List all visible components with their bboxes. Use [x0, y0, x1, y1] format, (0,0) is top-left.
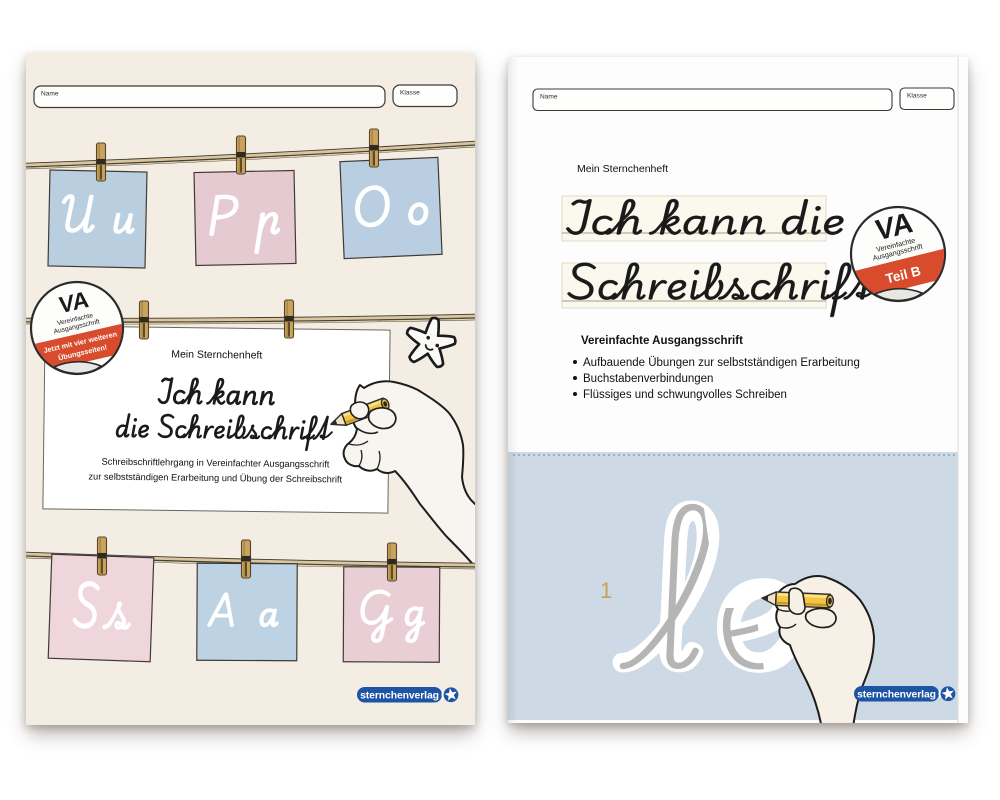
svg-text:sternchenverlag: sternchenverlag: [857, 690, 936, 701]
svg-text:Aufbauende Übungen zur selbsts: Aufbauende Übungen zur selbstständigen E…: [583, 357, 860, 369]
svg-text:Klasse: Klasse: [907, 93, 927, 100]
svg-text:Mein Sternchenheft: Mein Sternchenheft: [577, 163, 668, 175]
svg-text:Klasse: Klasse: [400, 90, 420, 97]
svg-text:Flüssiges und schwungvolles Sc: Flüssiges und schwungvolles Schreiben: [583, 389, 787, 401]
svg-text:Name: Name: [540, 94, 558, 101]
svg-text:Buchstabenverbindungen: Buchstabenverbindungen: [583, 373, 713, 385]
svg-text:sternchenverlag: sternchenverlag: [360, 691, 439, 702]
svg-text:Mein Sternchenheft: Mein Sternchenheft: [171, 348, 262, 361]
svg-text:Vereinfachte Ausgangsschrift: Vereinfachte Ausgangsschrift: [581, 335, 743, 347]
svg-text:1: 1: [600, 578, 612, 603]
svg-text:Name: Name: [41, 91, 59, 98]
